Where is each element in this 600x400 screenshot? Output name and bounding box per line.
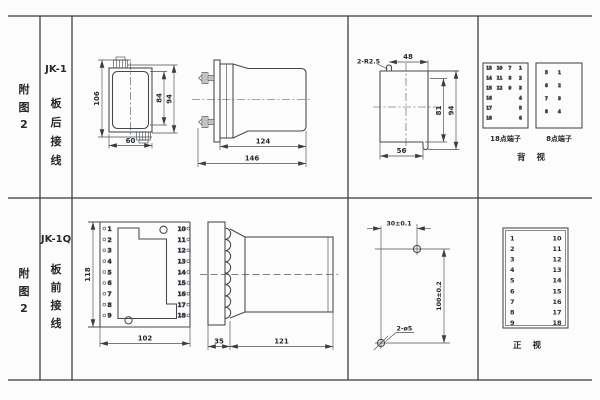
terminal: 5 bbox=[103, 269, 112, 276]
cutout-left-bottom-edges bbox=[380, 71, 423, 142]
terminal: 2 bbox=[103, 237, 112, 244]
fig-char: 附 bbox=[19, 266, 30, 280]
svg-text:11: 11 bbox=[177, 237, 185, 244]
terminal: 4 bbox=[103, 259, 112, 266]
terminal-cell: 17 bbox=[486, 106, 492, 111]
top-terminal-block bbox=[114, 57, 128, 68]
model-name: JK-1Q bbox=[40, 234, 71, 245]
fig-char: 附 bbox=[19, 82, 30, 96]
terminal: 12 bbox=[177, 248, 189, 255]
dim-84: 84 bbox=[156, 93, 164, 103]
wiring-char: 线 bbox=[51, 316, 62, 330]
jk1-panel-cutout-drawing: 2-R2.5 48 81 94 56 bbox=[357, 53, 460, 160]
dim-81: 81 bbox=[435, 106, 443, 116]
jk1q-drill-template-drawing: 30±0.1 100±0.2 2-ø5 bbox=[367, 221, 450, 351]
terminal: 8 bbox=[103, 302, 112, 309]
svg-text:10: 10 bbox=[552, 235, 562, 243]
svg-text:13: 13 bbox=[177, 259, 185, 266]
terminal-cell: 6 bbox=[519, 116, 522, 121]
svg-text:7: 7 bbox=[510, 298, 515, 306]
svg-text:4: 4 bbox=[558, 109, 561, 114]
svg-text:8: 8 bbox=[108, 302, 112, 309]
terminal-cell: 16 bbox=[486, 96, 492, 101]
socket-contour bbox=[118, 228, 177, 319]
dim-56: 56 bbox=[397, 147, 407, 155]
svg-text:7: 7 bbox=[108, 291, 112, 298]
terminal-cell: 14 bbox=[486, 76, 492, 81]
terminal-cell: 15 bbox=[486, 86, 492, 91]
svg-text:14: 14 bbox=[177, 269, 185, 276]
svg-text:2: 2 bbox=[519, 76, 522, 81]
terminal-cell: 3 bbox=[558, 96, 561, 101]
terminal-cell: 8 bbox=[509, 76, 512, 81]
fig-char: 2 bbox=[20, 118, 28, 131]
svg-text:17: 17 bbox=[177, 302, 185, 309]
terminal-cell: 12 bbox=[497, 86, 503, 91]
svg-text:5: 5 bbox=[108, 269, 112, 276]
dim-35: 35 bbox=[214, 338, 224, 346]
svg-text:16: 16 bbox=[177, 291, 185, 298]
svg-text:7: 7 bbox=[545, 96, 548, 101]
svg-text:8: 8 bbox=[509, 76, 512, 81]
terminal: 11 bbox=[177, 237, 189, 244]
terminal-cell: 7 bbox=[545, 96, 548, 101]
wiring-char: 线 bbox=[51, 153, 62, 167]
svg-text:18: 18 bbox=[177, 313, 185, 320]
mounting-stud-bottom bbox=[199, 117, 215, 128]
svg-text:2: 2 bbox=[558, 83, 561, 88]
svg-text:15: 15 bbox=[552, 287, 562, 295]
dim-121: 121 bbox=[274, 338, 289, 346]
terminal-cell: 9 bbox=[509, 86, 512, 91]
terminal: 10 bbox=[177, 226, 189, 233]
svg-text:2: 2 bbox=[510, 245, 515, 253]
svg-text:9: 9 bbox=[510, 319, 515, 327]
jk1-side-view-drawing: 124 146 bbox=[192, 60, 312, 167]
model-name: JK-1 bbox=[44, 64, 67, 75]
wiring-char: 板 bbox=[51, 262, 63, 276]
svg-text:3: 3 bbox=[510, 256, 515, 264]
svg-text:14: 14 bbox=[486, 76, 492, 81]
wiring-char: 接 bbox=[51, 298, 62, 312]
svg-text:6: 6 bbox=[519, 116, 522, 121]
svg-text:6: 6 bbox=[545, 83, 548, 88]
dim-146: 146 bbox=[245, 155, 260, 163]
dim-48: 48 bbox=[403, 53, 413, 61]
svg-text:11: 11 bbox=[497, 76, 503, 81]
terminal: 16 bbox=[177, 291, 189, 298]
svg-text:3: 3 bbox=[108, 248, 112, 255]
svg-text:8: 8 bbox=[545, 109, 548, 114]
panel-right-terminals: 10 11 12 13 14 15 16 17 18 bbox=[177, 226, 189, 320]
terminal-grid-8: 5 1 6 2 7 3 8 4 bbox=[545, 70, 561, 114]
terminal-cell: 2 bbox=[558, 83, 561, 88]
terminal-cell: 1 bbox=[519, 66, 522, 71]
cutout-right-edge-slot bbox=[423, 71, 428, 150]
svg-text:4: 4 bbox=[510, 266, 515, 274]
svg-text:5: 5 bbox=[545, 70, 548, 75]
row2-fig-label: 附 图 2 bbox=[19, 266, 30, 315]
svg-text:10: 10 bbox=[497, 66, 503, 71]
svg-text:18: 18 bbox=[486, 116, 492, 121]
terminal-list-right: 10 11 12 13 14 15 16 17 18 bbox=[552, 235, 562, 327]
relay-case-outline bbox=[233, 64, 306, 138]
mounting-stud-top bbox=[199, 73, 215, 84]
svg-text:7: 7 bbox=[509, 66, 512, 71]
terminal-cell: 10 bbox=[497, 66, 503, 71]
terminal-cell: 18 bbox=[486, 116, 492, 121]
wiring-char: 板 bbox=[51, 96, 63, 110]
dim-94: 94 bbox=[166, 94, 174, 104]
front-plate bbox=[208, 222, 225, 325]
taper-lines bbox=[230, 229, 245, 318]
dim-100: 100±0.2 bbox=[436, 281, 443, 311]
terminal: 1 bbox=[103, 226, 112, 233]
row1-model-label: JK-1 板 后 接 线 bbox=[44, 64, 67, 167]
dim-30: 30±0.1 bbox=[386, 221, 411, 228]
svg-text:14: 14 bbox=[552, 277, 562, 285]
terminal-cell: 8 bbox=[545, 109, 548, 114]
svg-text:10: 10 bbox=[177, 226, 185, 233]
terminal-cell: 7 bbox=[509, 66, 512, 71]
terminal-list-left: 1 2 3 4 5 6 7 8 9 bbox=[510, 235, 515, 327]
terminal-cell: 6 bbox=[545, 83, 548, 88]
figure-canvas: 附 图 2 JK-1 板 后 接 线 附 图 2 JK-1Q 板 前 接 线 bbox=[0, 0, 600, 400]
svg-text:17: 17 bbox=[552, 308, 561, 316]
terminal-cell: 1 bbox=[558, 70, 561, 75]
rear-view-label: 背 视 bbox=[517, 152, 549, 163]
svg-text:6: 6 bbox=[510, 287, 515, 295]
jk1q-side-view-drawing: 35 121 bbox=[200, 222, 338, 350]
svg-text:13: 13 bbox=[486, 66, 492, 71]
svg-text:9: 9 bbox=[509, 86, 512, 91]
terminal-cell: 3 bbox=[519, 86, 522, 91]
jk1q-panel-view-drawing: 1 2 3 4 5 6 7 8 9 10 11 12 13 14 15 16 1… bbox=[84, 222, 190, 347]
svg-text:1: 1 bbox=[558, 70, 561, 75]
panel-left-terminals: 1 2 3 4 5 6 7 8 9 bbox=[103, 226, 112, 320]
svg-text:2: 2 bbox=[108, 237, 112, 244]
cutout-top-slot bbox=[387, 65, 392, 71]
mounting-hole bbox=[160, 226, 167, 233]
jk1-front-view-drawing: 106 84 94 60 bbox=[93, 57, 178, 149]
svg-text:1: 1 bbox=[519, 66, 522, 71]
svg-text:16: 16 bbox=[552, 298, 562, 306]
row1-fig-label: 附 图 2 bbox=[19, 82, 30, 131]
svg-text:4: 4 bbox=[519, 96, 522, 101]
terminal-bumps bbox=[225, 228, 231, 318]
terminal: 18 bbox=[177, 313, 189, 320]
svg-text:1: 1 bbox=[510, 235, 515, 243]
terminal-cell: 4 bbox=[519, 96, 522, 101]
dim-94: 94 bbox=[448, 106, 456, 116]
terminal: 17 bbox=[177, 302, 189, 309]
wiring-char: 后 bbox=[51, 115, 62, 129]
terminal-grid-18: 13 10 7 1 14 11 8 2 15 12 9 3 16 4 17 5 … bbox=[486, 66, 522, 121]
note-2-r2.5: 2-R2.5 bbox=[357, 59, 380, 66]
dim-106: 106 bbox=[93, 91, 101, 106]
terminal-cell: 11 bbox=[497, 76, 503, 81]
terminal: 3 bbox=[103, 248, 112, 255]
fig-char: 图 bbox=[19, 285, 30, 298]
dim-118: 118 bbox=[84, 267, 92, 282]
svg-text:11: 11 bbox=[552, 245, 562, 253]
svg-text:8: 8 bbox=[510, 308, 515, 316]
front-view-label: 正 视 bbox=[513, 340, 545, 351]
terminal-cell: 5 bbox=[545, 70, 548, 75]
dim-124: 124 bbox=[256, 138, 271, 146]
terminal: 13 bbox=[177, 259, 189, 266]
svg-text:12: 12 bbox=[177, 248, 185, 255]
mounting-hole bbox=[125, 317, 132, 324]
svg-text:3: 3 bbox=[558, 96, 561, 101]
svg-text:13: 13 bbox=[552, 266, 561, 274]
svg-text:12: 12 bbox=[552, 256, 561, 264]
manual-figure-page: 附 图 2 JK-1 板 后 接 线 附 图 2 JK-1Q 板 前 接 线 bbox=[0, 0, 600, 400]
bottom-terminal-block bbox=[137, 132, 151, 143]
svg-text:1: 1 bbox=[108, 226, 112, 233]
terminal: 9 bbox=[103, 313, 112, 320]
dim-60: 60 bbox=[126, 137, 136, 145]
svg-text:5: 5 bbox=[510, 277, 515, 285]
svg-text:5: 5 bbox=[519, 106, 522, 111]
terminal-cell: 13 bbox=[486, 66, 492, 71]
svg-text:15: 15 bbox=[486, 86, 492, 91]
svg-text:3: 3 bbox=[519, 86, 522, 91]
terminal: 7 bbox=[103, 291, 112, 298]
terminal: 15 bbox=[177, 280, 189, 287]
mounting-flange bbox=[214, 60, 220, 142]
jk1-rear-terminal-panels: 13 10 7 1 14 11 8 2 15 12 9 3 16 4 17 5 … bbox=[483, 63, 582, 163]
svg-text:17: 17 bbox=[486, 106, 492, 111]
wiring-char: 接 bbox=[51, 134, 62, 148]
terminal: 14 bbox=[177, 269, 189, 276]
svg-text:15: 15 bbox=[177, 280, 185, 287]
terminal-cell: 2 bbox=[519, 76, 522, 81]
svg-text:4: 4 bbox=[108, 259, 112, 266]
wiring-char: 前 bbox=[51, 280, 62, 294]
svg-text:6: 6 bbox=[108, 280, 112, 287]
terminal-box-8-label: 8点端子 bbox=[546, 134, 572, 143]
svg-text:12: 12 bbox=[497, 86, 503, 91]
table-grid bbox=[8, 16, 592, 380]
fig-char: 图 bbox=[19, 101, 30, 114]
svg-text:9: 9 bbox=[108, 313, 112, 320]
row2-model-label: JK-1Q 板 前 接 线 bbox=[40, 234, 71, 330]
jk1q-front-terminal-list: 1 2 3 4 5 6 7 8 9 10 11 12 13 14 15 16 1… bbox=[503, 228, 568, 351]
note-2-phi5: 2-ø5 bbox=[397, 326, 413, 333]
fig-char: 2 bbox=[20, 302, 28, 315]
svg-text:16: 16 bbox=[486, 96, 492, 101]
dim-102: 102 bbox=[138, 335, 153, 343]
terminal-box-18-label: 18点端子 bbox=[490, 134, 521, 143]
svg-text:18: 18 bbox=[552, 319, 562, 327]
terminal-cell: 4 bbox=[558, 109, 561, 114]
terminal: 6 bbox=[103, 280, 112, 287]
terminal-cell: 5 bbox=[519, 106, 522, 111]
